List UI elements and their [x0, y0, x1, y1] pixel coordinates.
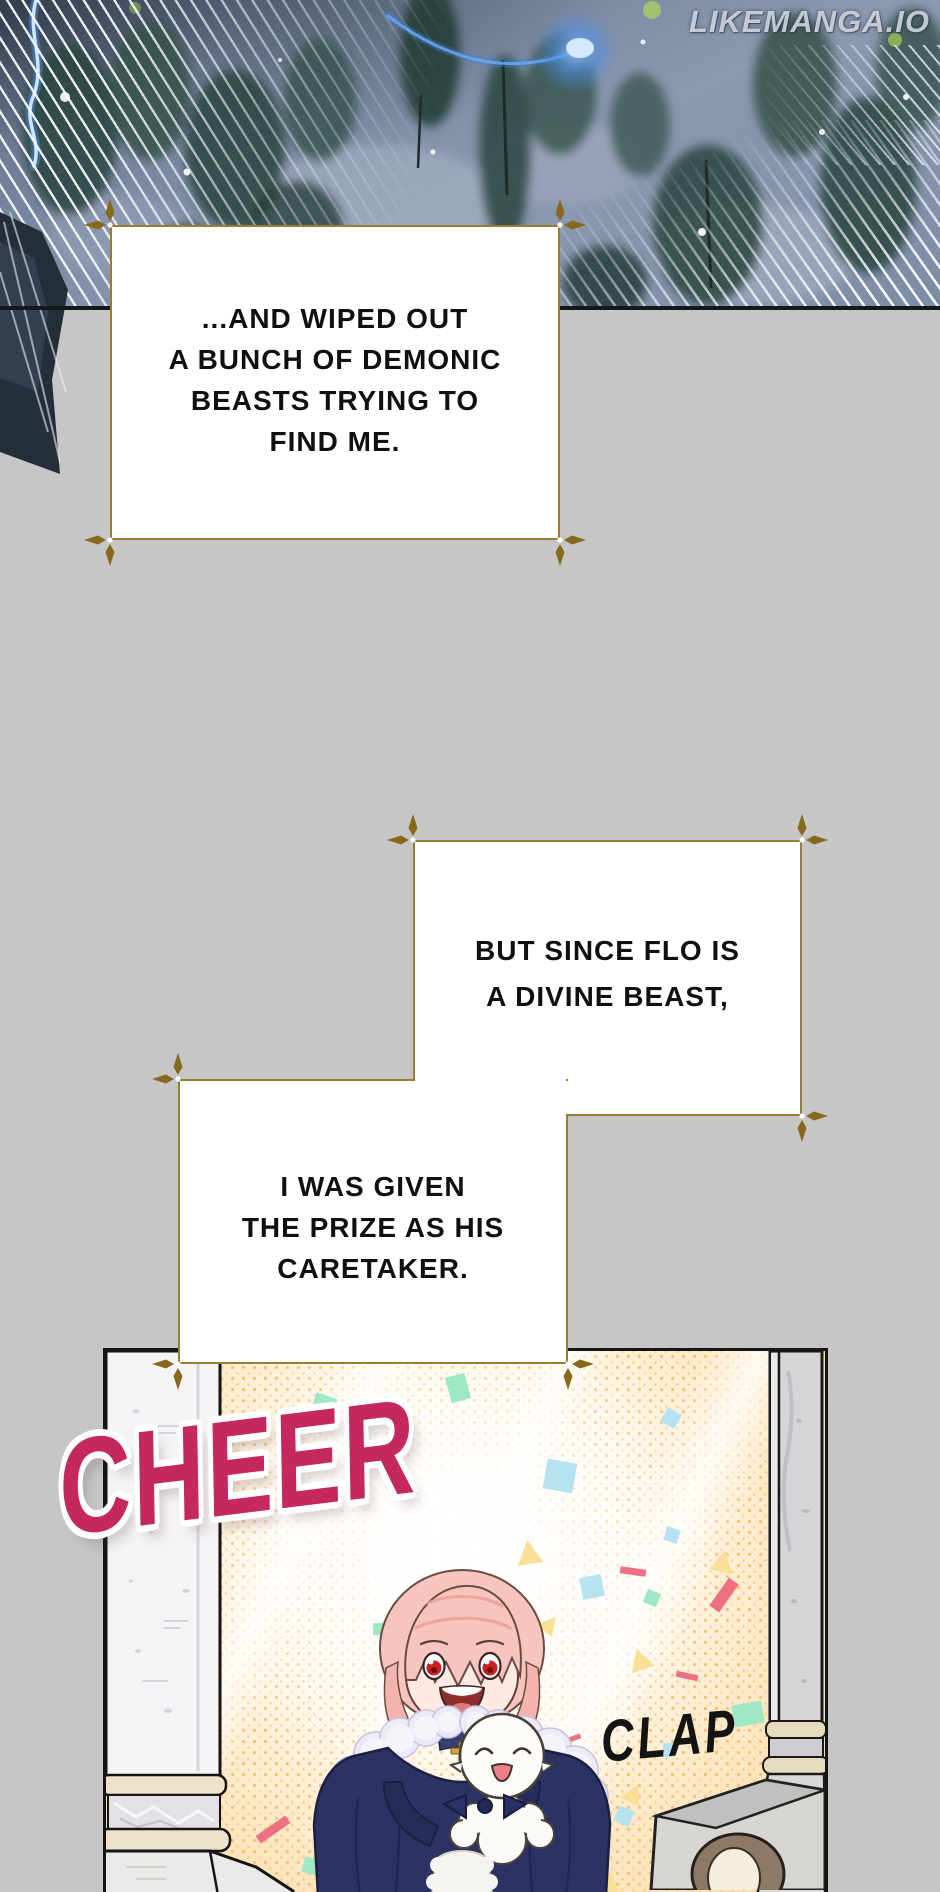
narration-line: FIND ME. [110, 421, 560, 462]
narration-line: I WAS GIVEN [178, 1166, 568, 1207]
narration-line: BUT SINCE FLO IS [413, 928, 802, 974]
manga-page: LIKEMANGA.IO ...AND WIPED OUT A BUNCH OF… [0, 0, 940, 1892]
character-figure [288, 1558, 648, 1892]
narration-text-2: BUT SINCE FLO IS A DIVINE BEAST, [413, 928, 802, 1020]
narration-line: A BUNCH OF DEMONIC [110, 339, 560, 380]
narration-line: CARETAKER. [178, 1248, 568, 1289]
rock-silhouette [0, 212, 72, 484]
pedestal-with-egg [646, 1776, 825, 1892]
narration-text-1: ...AND WIPED OUT A BUNCH OF DEMONIC BEAS… [110, 298, 560, 462]
site-watermark: LIKEMANGA.IO [689, 4, 930, 40]
sfx-clap: CLAP [598, 1695, 741, 1776]
narration-line: ...AND WIPED OUT [110, 298, 560, 339]
narration-line: BEASTS TRYING TO [110, 380, 560, 421]
box-join-patch [415, 1081, 568, 1114]
narration-text-3: I WAS GIVEN THE PRIZE AS HIS CARETAKER. [178, 1166, 568, 1289]
narration-line: THE PRIZE AS HIS [178, 1207, 568, 1248]
narration-line: A DIVINE BEAST, [413, 974, 802, 1020]
